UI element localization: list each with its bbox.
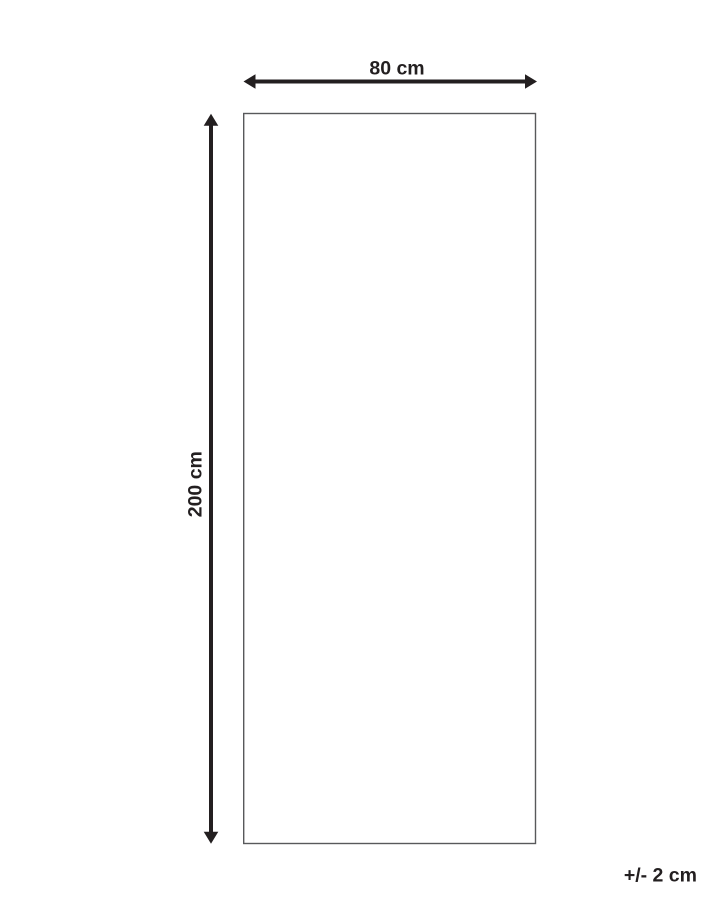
svg-text:80 cm: 80 cm	[369, 58, 424, 80]
svg-text:+/- 2 cm: +/- 2 cm	[624, 864, 697, 886]
svg-text:200 cm: 200 cm	[184, 451, 206, 517]
